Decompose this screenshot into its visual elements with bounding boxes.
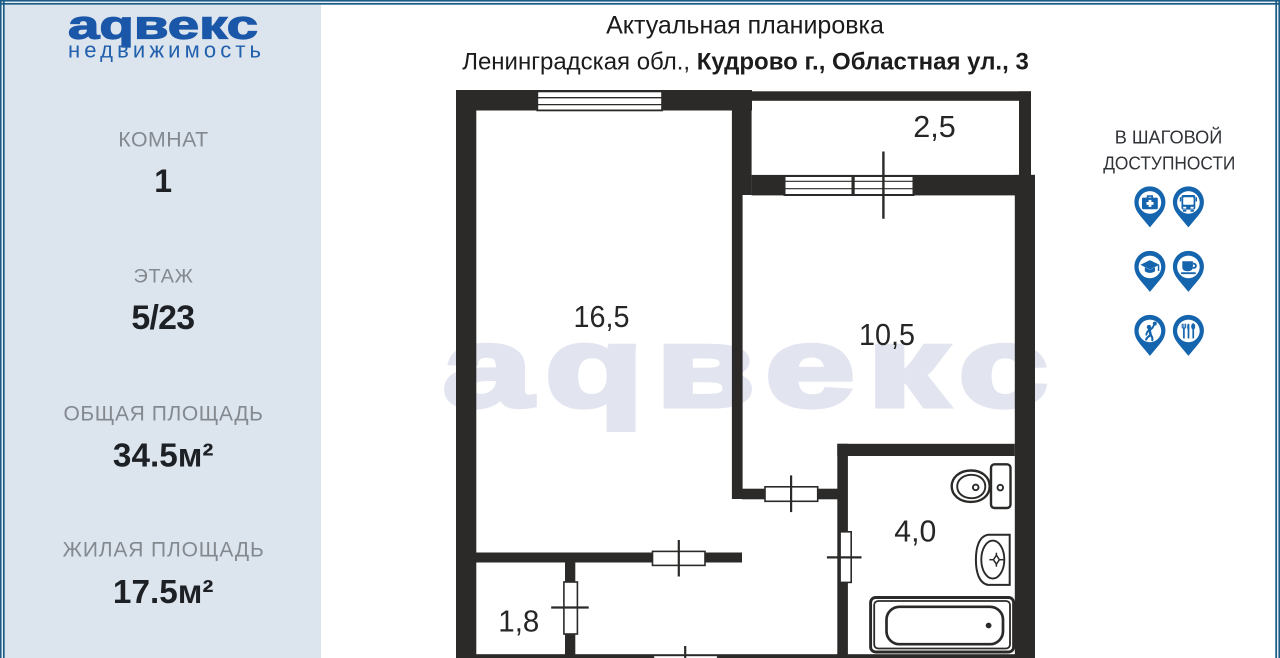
svg-text:1,8: 1,8	[498, 603, 539, 638]
svg-text:10,5: 10,5	[859, 317, 915, 352]
svg-text:Ленинградская обл., Кудрово г.: Ленинградская обл., Кудрово г., Областна…	[462, 49, 1029, 76]
svg-text:аqвекс: аqвекс	[443, 304, 1048, 430]
svg-text:КОМНАТ: КОМНАТ	[118, 128, 208, 152]
svg-text:ЭТАЖ: ЭТАЖ	[133, 265, 193, 287]
svg-text:ЖИЛАЯ ПЛОЩАДЬ: ЖИЛАЯ ПЛОЩАДЬ	[63, 538, 264, 561]
svg-text:1: 1	[154, 163, 172, 199]
svg-text:16,5: 16,5	[574, 299, 630, 334]
svg-text:ДОСТУПНОСТИ: ДОСТУПНОСТИ	[1103, 153, 1235, 174]
svg-text:В ШАГОВОЙ: В ШАГОВОЙ	[1115, 127, 1223, 148]
svg-text:5/23: 5/23	[131, 299, 195, 337]
svg-text:17.5м²: 17.5м²	[113, 574, 214, 611]
svg-text:34.5м²: 34.5м²	[113, 437, 214, 474]
svg-text:ОБЩАЯ ПЛОЩАДЬ: ОБЩАЯ ПЛОЩАДЬ	[63, 403, 263, 426]
svg-text:Актуальная планировка: Актуальная планировка	[606, 12, 884, 40]
svg-text:2,5: 2,5	[913, 109, 956, 144]
svg-text:4,0: 4,0	[894, 513, 936, 548]
